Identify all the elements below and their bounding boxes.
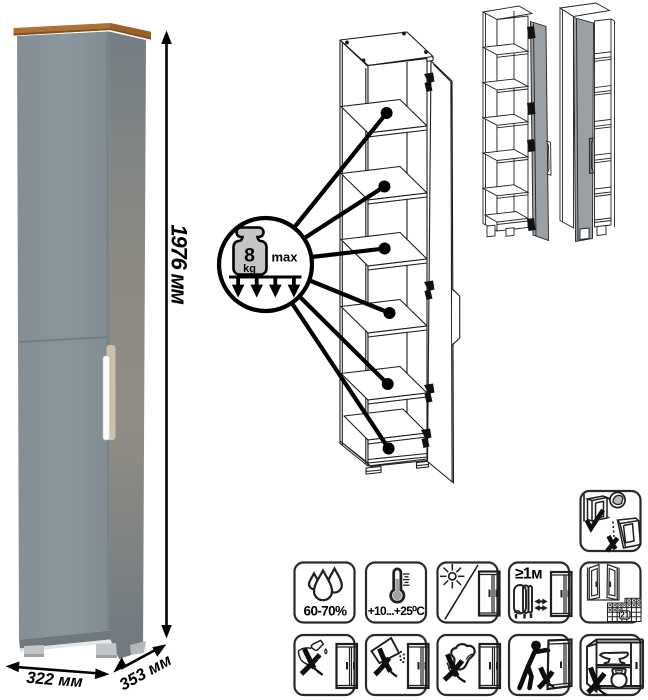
- svg-text:1976 мм: 1976 мм: [167, 224, 192, 304]
- svg-text:21: 21: [620, 611, 629, 620]
- svg-text:≥1м: ≥1м: [515, 566, 542, 583]
- svg-text:60-70%: 60-70%: [304, 604, 348, 619]
- svg-text:kg: kg: [243, 263, 256, 275]
- svg-text:max: max: [272, 250, 299, 265]
- svg-text:+10...+25⁰С: +10...+25⁰С: [368, 604, 426, 618]
